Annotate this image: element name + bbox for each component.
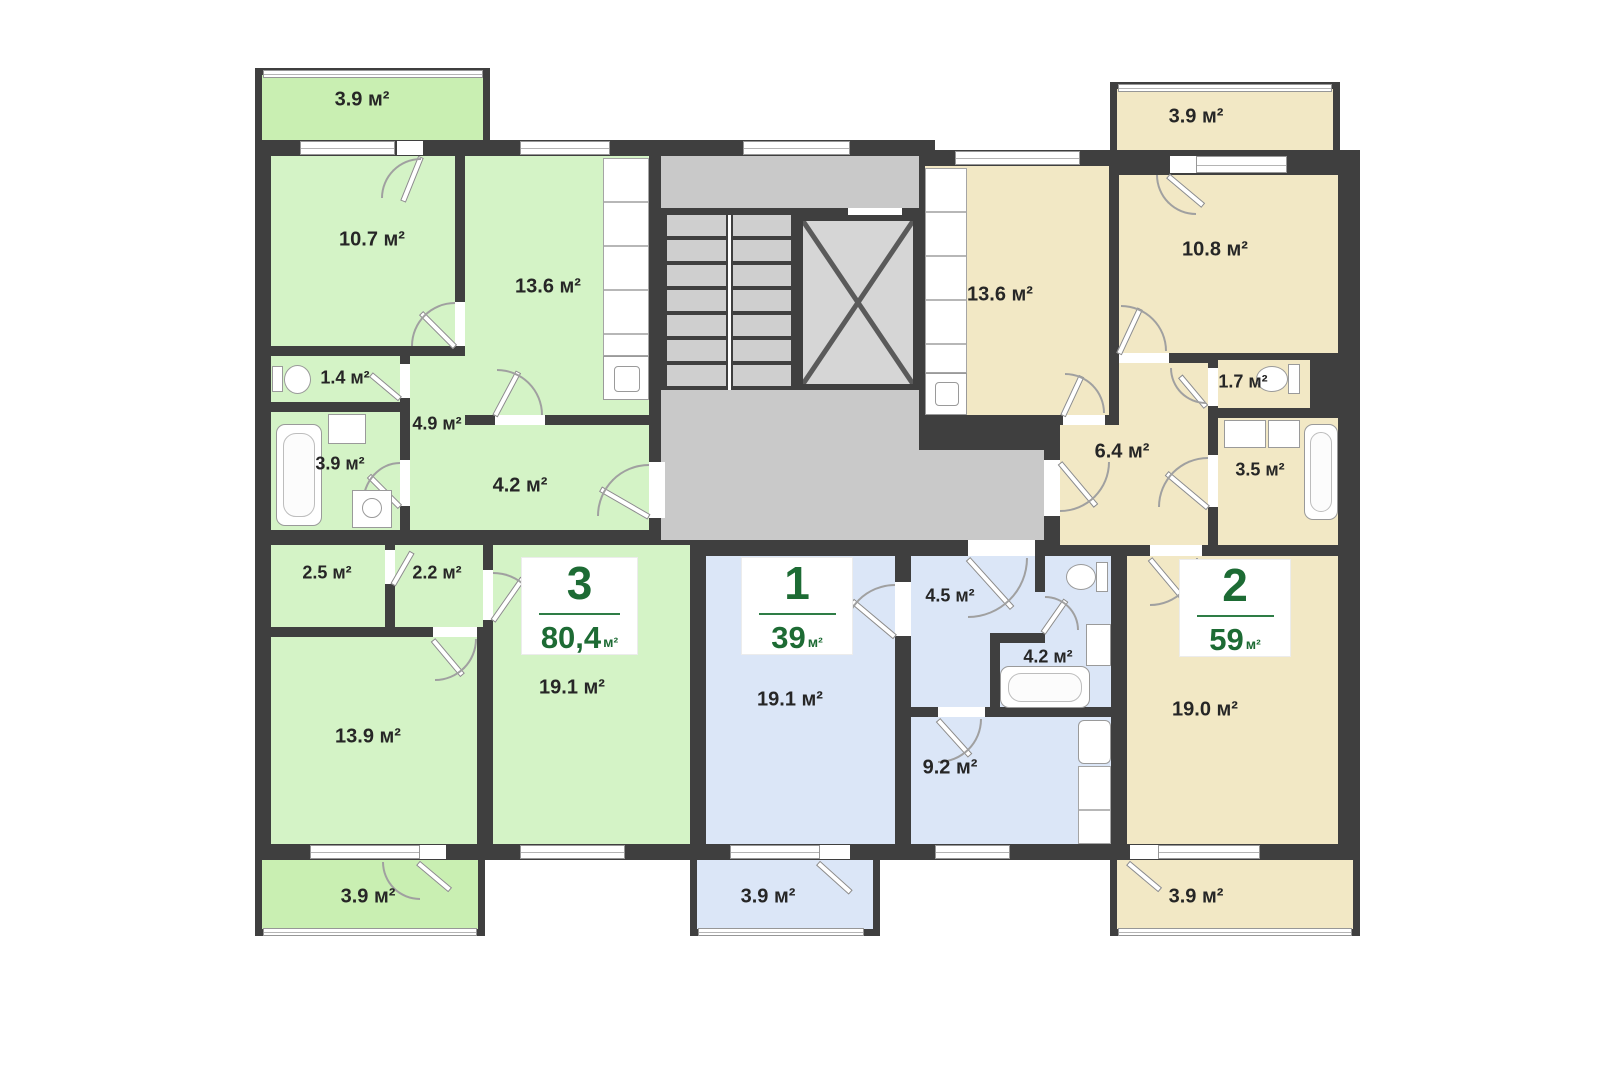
apartment-number: 1	[784, 560, 810, 606]
door-opening	[1119, 353, 1169, 363]
stair-flight	[667, 215, 726, 390]
door-opening	[820, 845, 850, 859]
apartment-number: 2	[1222, 562, 1248, 608]
building-entrance-opening	[743, 141, 850, 155]
apartment-2-balcony-top	[1110, 82, 1340, 153]
door-opening	[400, 460, 410, 506]
apartment-1-badge: 1 39м²	[742, 558, 852, 654]
badge-divider	[1197, 615, 1274, 617]
window	[1118, 928, 1352, 936]
bathtub-basin	[1008, 673, 1082, 702]
door-opening	[938, 707, 985, 717]
window	[263, 928, 477, 936]
door-opening	[1170, 156, 1196, 173]
apartment-2-badge: 2 59м²	[1180, 560, 1290, 656]
door-opening	[433, 627, 477, 637]
room-area-label: 4.5 м²	[925, 586, 974, 607]
window	[698, 928, 864, 936]
room-area-label: 1.4 м²	[320, 368, 369, 389]
window	[955, 151, 1080, 165]
refrigerator	[1078, 720, 1111, 764]
window	[263, 70, 483, 78]
apartment-2-balcony-bottom	[1110, 860, 1360, 936]
apartment-area-unit: м²	[808, 633, 823, 653]
room-area-label: 3.5 м²	[1235, 460, 1284, 481]
elevator-shaft	[797, 215, 919, 390]
room-area-label: 3.9 м²	[315, 454, 364, 475]
washing-machine-door	[362, 498, 382, 518]
apartment-3-badge: 3 80,4м²	[522, 558, 637, 654]
apartment-area-unit: м²	[1246, 635, 1261, 655]
toilet-tank	[1288, 364, 1300, 394]
apartment-3-entry-door	[649, 462, 665, 518]
room-area-label: 6.4 м²	[1095, 441, 1150, 464]
window	[1118, 84, 1332, 92]
window	[520, 845, 625, 859]
kitchen-counter	[925, 168, 967, 373]
room-area-label: 2.5 м²	[302, 563, 351, 584]
toilet	[1066, 564, 1096, 590]
room-area-label: 3.9 м²	[1169, 886, 1224, 909]
door-opening	[483, 570, 493, 620]
room-area-label: 4.2 м²	[1023, 647, 1072, 668]
apartment-total-area: 59	[1209, 624, 1243, 655]
door-opening	[895, 582, 911, 636]
door-opening	[1150, 545, 1202, 556]
stairwell-landing	[661, 390, 919, 540]
window	[310, 845, 420, 859]
apartment-total-area: 80,4	[541, 622, 601, 653]
toilet	[284, 365, 311, 394]
room-area-label: 19.1 м²	[757, 689, 823, 712]
apartment-2-entry-door	[1044, 460, 1060, 516]
floor-plan: 3.9 м² 10.7 м² 13.6 м² 1.4 м² 4.9 м² 3.9…	[0, 0, 1620, 1080]
stair-flight	[733, 215, 791, 390]
elevator-cross-icon	[803, 221, 913, 384]
bathtub-basin	[283, 433, 315, 517]
room-area-label: 3.9 м²	[1169, 106, 1224, 129]
toilet-tank	[272, 366, 283, 392]
window	[1158, 845, 1260, 859]
room-area-label: 2.2 м²	[412, 563, 461, 584]
door-opening	[1130, 845, 1158, 859]
room-area-label: 3.9 м²	[741, 886, 796, 909]
room-area-label: 10.7 м²	[339, 229, 405, 252]
kitchen-counter	[603, 158, 649, 356]
green-storage-2-5	[271, 545, 385, 627]
door-opening	[1063, 415, 1105, 425]
window	[935, 845, 1010, 859]
sink	[328, 414, 366, 444]
stairwell-vestibule	[661, 156, 919, 208]
kitchen-sink-basin	[614, 366, 640, 392]
door-opening	[397, 141, 423, 155]
window	[300, 141, 395, 155]
door-opening	[1208, 455, 1218, 507]
room-area-label: 13.9 м²	[335, 726, 401, 749]
bathroom-counter	[1268, 420, 1300, 448]
door-opening	[420, 845, 446, 859]
window	[730, 845, 820, 859]
window	[520, 141, 610, 155]
stair-divider	[726, 215, 733, 390]
door-opening	[495, 415, 545, 425]
kitchen-counter	[1078, 766, 1111, 844]
room-area-label: 4.2 м²	[493, 475, 548, 498]
door-opening	[1208, 368, 1218, 406]
green-hall-4-9	[410, 356, 465, 530]
room-area-label: 19.0 м²	[1172, 699, 1238, 722]
bathtub-basin	[1310, 432, 1332, 512]
room-area-label: 4.9 м²	[412, 414, 461, 435]
room-area-label: 19.1 м²	[539, 677, 605, 700]
sink	[1086, 624, 1111, 666]
common-corridor	[919, 450, 1044, 540]
apartment-number: 3	[567, 560, 593, 606]
apartment-total-area: 39	[771, 622, 805, 653]
room-area-label: 3.9 м²	[335, 89, 390, 112]
blue-hall-4-5-lower	[911, 633, 990, 707]
room-area-label: 3.9 м²	[341, 886, 396, 909]
room-area-label: 9.2 м²	[923, 757, 978, 780]
window	[1196, 156, 1287, 173]
kitchen-sink-basin	[935, 382, 959, 406]
toilet-tank	[1096, 562, 1108, 592]
badge-divider	[539, 613, 620, 615]
sink	[1224, 420, 1266, 448]
badge-divider	[759, 613, 836, 615]
apartment-area-unit: м²	[603, 633, 618, 653]
door-opening	[455, 302, 465, 346]
door-opening	[848, 208, 902, 215]
room-area-label: 13.6 м²	[967, 284, 1033, 307]
room-area-label: 10.8 м²	[1182, 239, 1248, 262]
room-area-label: 1.7 м²	[1218, 372, 1267, 393]
apartment-1-entry-door	[968, 540, 1035, 556]
door-opening	[400, 364, 410, 398]
room-area-label: 13.6 м²	[515, 276, 581, 299]
